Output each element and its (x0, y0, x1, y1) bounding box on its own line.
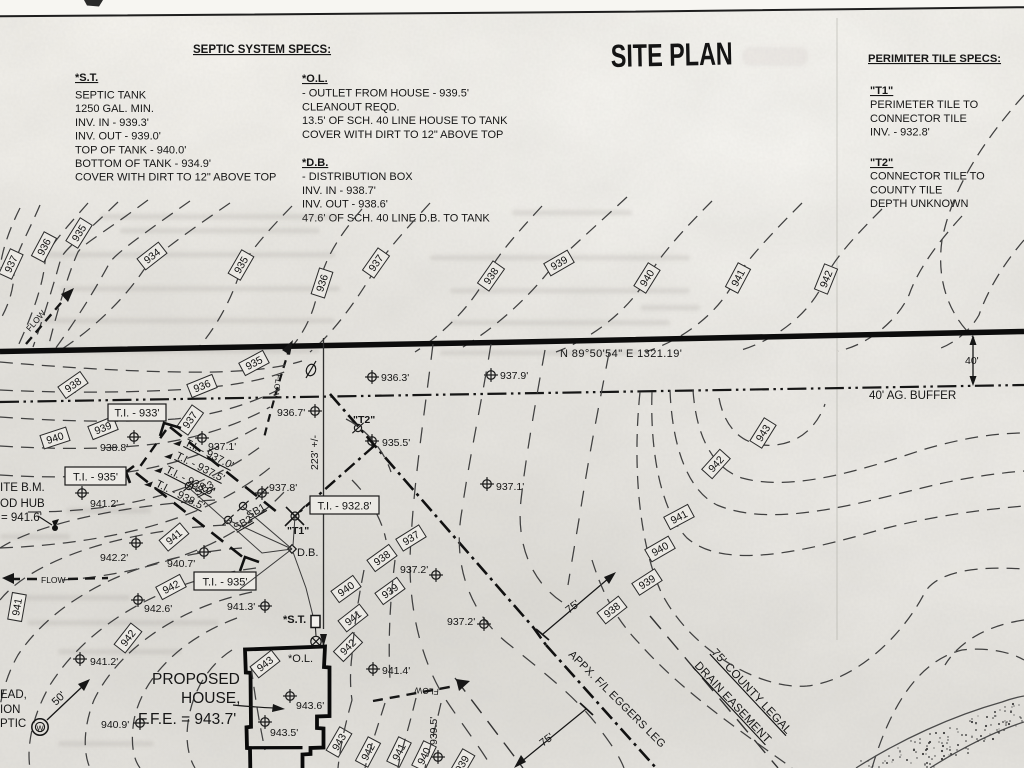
svg-text:HOUSE,: HOUSE, (181, 690, 240, 707)
svg-text:INV. OUT - 939.0': INV. OUT - 939.0' (75, 131, 161, 143)
svg-text:N 89°50'54" E 1321.19': N 89°50'54" E 1321.19' (560, 348, 682, 360)
svg-text:*S.T.: *S.T. (75, 72, 98, 84)
svg-text:941.4': 941.4' (382, 665, 410, 677)
svg-text:FLOW: FLOW (414, 685, 439, 697)
svg-text:W: W (36, 724, 44, 733)
svg-text:937.1': 937.1' (496, 481, 524, 493)
svg-text:941.2': 941.2' (90, 498, 118, 510)
svg-text:- OUTLET FROM HOUSE - 939.5': - OUTLET FROM HOUSE - 939.5' (302, 88, 469, 100)
svg-text:1250 GAL. MIN.: 1250 GAL. MIN. (75, 103, 154, 115)
svg-text:ION: ION (0, 704, 20, 716)
svg-text:CLEANOUT REQD.: CLEANOUT REQD. (302, 101, 400, 113)
svg-text:13.5' OF SCH. 40 LINE HOUSE TO: 13.5' OF SCH. 40 LINE HOUSE TO TANK (302, 115, 508, 127)
svg-text:COVER WITH DIRT TO 12" ABOVE T: COVER WITH DIRT TO 12" ABOVE TOP (75, 172, 276, 184)
svg-text:BOTTOM OF TANK - 934.9': BOTTOM OF TANK - 934.9' (75, 158, 211, 170)
svg-text:40' AG. BUFFER: 40' AG. BUFFER (869, 389, 956, 402)
svg-text:COVER WITH DIRT TO 12" ABOVE T: COVER WITH DIRT TO 12" ABOVE TOP (302, 129, 503, 141)
svg-text:CONNECTOR TILE: CONNECTOR TILE (870, 113, 967, 125)
svg-text:943.6': 943.6' (296, 700, 324, 712)
svg-text:T.I. - 933': T.I. - 933' (115, 408, 160, 420)
svg-text:F.F.E. = 943.7': F.F.E. = 943.7' (138, 711, 236, 728)
svg-text:FLOW: FLOW (41, 575, 66, 585)
svg-text:T.I. - 932.8': T.I. - 932.8' (317, 501, 371, 513)
svg-text:INV. - 932.8': INV. - 932.8' (870, 127, 930, 139)
svg-text:INV. IN - 939.3': INV. IN - 939.3' (75, 117, 149, 129)
svg-text:*S.T.: *S.T. (283, 614, 306, 626)
svg-text:INV. IN - 938.7': INV. IN - 938.7' (302, 185, 376, 197)
svg-text:= 941.6': = 941.6' (1, 512, 42, 524)
svg-text:223' +/-: 223' +/- (309, 435, 321, 470)
svg-text:942.6': 942.6' (144, 603, 172, 615)
svg-text:941.2': 941.2' (90, 656, 118, 668)
svg-text:SEPTIC SYSTEM SPECS:: SEPTIC SYSTEM SPECS: (193, 44, 331, 56)
svg-text:OD HUB: OD HUB (0, 498, 45, 510)
svg-text:943.5': 943.5' (270, 727, 298, 739)
svg-text:EAD,: EAD, (0, 689, 27, 701)
svg-text:TOP OF TANK - 940.0': TOP OF TANK - 940.0' (75, 144, 186, 156)
svg-text:"T1": "T1" (287, 525, 309, 537)
svg-text:T.I. - 935': T.I. - 935' (203, 577, 248, 589)
svg-text:937.2': 937.2' (400, 564, 428, 576)
svg-text:937.9': 937.9' (500, 370, 528, 382)
svg-text:PERIMETER TILE TO: PERIMETER TILE TO (870, 99, 979, 111)
svg-text:PTIC: PTIC (0, 718, 26, 730)
svg-text:939.5': 939.5' (428, 717, 440, 745)
svg-text:935.5': 935.5' (382, 437, 410, 449)
svg-text:"T1": "T1" (870, 85, 893, 97)
svg-text:937.1': 937.1' (208, 441, 236, 453)
svg-text:942.2': 942.2' (100, 552, 128, 564)
svg-text:"T2": "T2" (870, 157, 893, 169)
svg-text:937.8': 937.8' (269, 482, 297, 494)
svg-text:COUNTY TILE: COUNTY TILE (870, 184, 942, 196)
svg-text:940.7': 940.7' (167, 558, 195, 570)
svg-text:SITE PLAN: SITE PLAN (610, 36, 733, 74)
svg-text:938.8': 938.8' (100, 442, 128, 454)
svg-text:940.9': 940.9' (101, 719, 129, 731)
svg-text:*D.B.: *D.B. (302, 157, 328, 169)
svg-text:*O.L.: *O.L. (302, 73, 328, 85)
svg-text:T.I. - 935': T.I. - 935' (73, 472, 118, 484)
svg-text:ITE B.M.: ITE B.M. (0, 482, 45, 494)
svg-text:936.3': 936.3' (381, 372, 409, 384)
svg-text:PERIMITER TILE SPECS:: PERIMITER TILE SPECS: (868, 53, 1001, 65)
svg-text:937.2': 937.2' (447, 616, 475, 628)
svg-text:D.B.: D.B. (297, 547, 318, 559)
svg-text:PROPOSED: PROPOSED (152, 671, 240, 688)
svg-text:936.7': 936.7' (277, 407, 305, 419)
svg-text:941.3': 941.3' (227, 601, 255, 613)
svg-text:40': 40' (965, 355, 979, 367)
svg-text:INV. OUT - 938.6': INV. OUT - 938.6' (302, 199, 388, 211)
svg-text:- DISTRIBUTION BOX: - DISTRIBUTION BOX (302, 171, 413, 183)
svg-text:SEPTIC TANK: SEPTIC TANK (75, 90, 147, 102)
svg-text:*O.L.: *O.L. (288, 653, 313, 665)
